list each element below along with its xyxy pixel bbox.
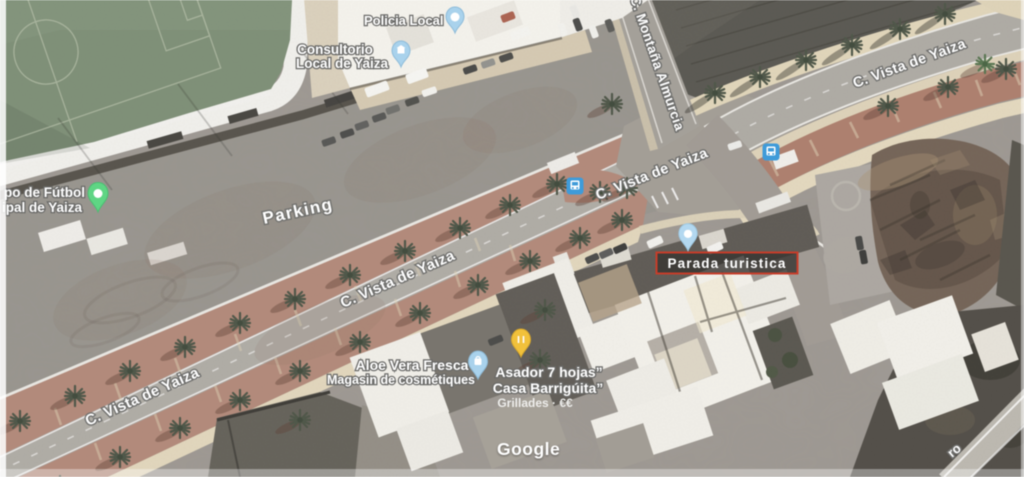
svg-text:Local de Yaiza: Local de Yaiza [296,56,389,71]
svg-text:Magasin de cosmétiques: Magasin de cosmétiques [327,373,475,387]
svg-text:ipal de Yaiza: ipal de Yaiza [2,200,83,215]
svg-text:Google: Google [497,439,560,459]
svg-text:Aloe Vera Fresca: Aloe Vera Fresca [356,357,469,373]
svg-text:Casa Barrigúita”: Casa Barrigúita” [493,380,603,396]
svg-text:Asador 7 hojas”: Asador 7 hojas” [495,364,602,380]
svg-text:Policia Local: Policia Local [364,13,443,28]
svg-text:po de Fútbol: po de Fútbol [4,185,85,200]
svg-text:Parada turistica: Parada turistica [668,256,787,271]
svg-text:Consultorio: Consultorio [297,42,373,57]
svg-text:Grillades · €€: Grillades · €€ [497,396,573,410]
